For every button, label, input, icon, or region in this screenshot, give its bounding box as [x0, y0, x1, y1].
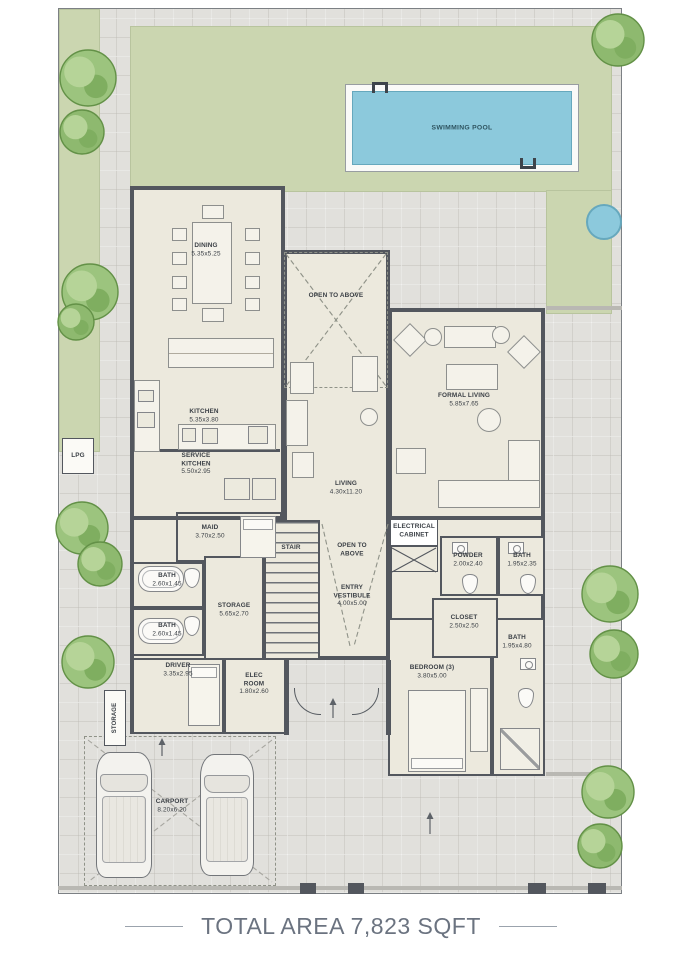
open_above_2-label: OPEN TOABOVE: [337, 542, 367, 558]
living-label: LIVING4.30x11.20: [330, 480, 362, 496]
open_above_1-label: OPEN TO ABOVE: [309, 292, 364, 300]
electrical_cabinet-label: ELECTRICALCABINET: [393, 523, 435, 539]
bedroom_3-label: BEDROOM (3)3.80x5.00: [410, 664, 454, 680]
dining-label: DINING5.35x5.25: [191, 242, 220, 258]
bath_b-label: BATH2.60x1.45: [152, 622, 181, 638]
floor-plan-page: SWIMMING POOL DINING5.35x5.25KITCHEN5.35…: [0, 0, 682, 954]
service_kitchen-label: SERVICEKITCHEN5.50x2.95: [181, 452, 210, 476]
driver-label: DRIVER3.35x2.95: [163, 662, 192, 678]
carport-label: CARPORT8.20x6.20: [156, 798, 189, 814]
storage-label: STORAGE5.65x2.70: [218, 602, 250, 618]
kitchen-label: KITCHEN5.35x3.80: [189, 408, 218, 424]
bath_a-label: BATH2.60x1.45: [152, 572, 181, 588]
elec_room-label: ELECROOM1.80x2.60: [239, 672, 268, 696]
powder-label: POWDER2.00x2.40: [453, 552, 483, 568]
stair-label: STAIR: [281, 544, 300, 552]
storage_tag-label: STORAGE: [111, 703, 119, 733]
maid-label: MAID3.70x2.50: [195, 524, 224, 540]
bath_d-label: BATH1.95x4.80: [502, 634, 531, 650]
entry_vestibule-label: ENTRYVESTIBULE4.00x5.00: [333, 584, 370, 608]
formal_living-label: FORMAL LIVING5.85x7.65: [438, 392, 490, 408]
lpg-label: LPG: [71, 452, 85, 460]
labels-layer: DINING5.35x5.25KITCHEN5.35x3.80SERVICEKI…: [0, 0, 682, 954]
bath_c-label: BATH1.95x2.35: [507, 552, 536, 568]
closet-label: CLOSET2.50x2.50: [449, 614, 478, 630]
